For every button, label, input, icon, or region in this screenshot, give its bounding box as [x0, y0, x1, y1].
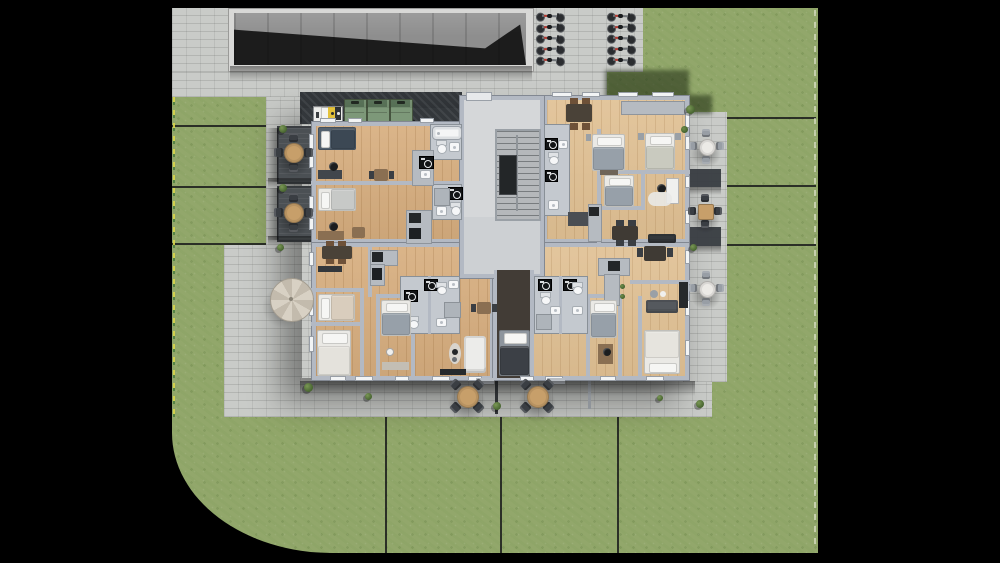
chair	[289, 133, 298, 142]
table-top	[284, 203, 304, 223]
patio-table-set	[691, 197, 719, 225]
bush	[657, 395, 663, 401]
parasol	[260, 274, 322, 332]
parasol-pole	[289, 297, 293, 301]
bush-foliage	[493, 402, 501, 410]
bush	[365, 393, 372, 400]
chair	[702, 298, 710, 306]
bush-foliage	[696, 400, 704, 408]
bush	[304, 383, 313, 392]
bush	[279, 125, 287, 133]
balcony-table-set	[275, 134, 311, 170]
patio-table-set	[447, 376, 487, 416]
bush-foliage	[690, 244, 697, 251]
floorplan-render	[0, 0, 1000, 563]
patio-table-set	[517, 376, 557, 416]
bush-foliage	[365, 393, 372, 400]
chair	[689, 142, 697, 150]
layer-outdoor	[0, 0, 1000, 563]
table-top	[698, 204, 714, 220]
table-top	[284, 143, 304, 163]
chair	[289, 193, 298, 202]
patio-table-set	[691, 273, 721, 303]
bush	[696, 400, 704, 408]
chair	[702, 156, 710, 164]
chair	[716, 284, 724, 292]
bush-foliage	[279, 125, 287, 133]
table-top	[457, 386, 479, 408]
bush-foliage	[686, 105, 695, 114]
bush	[277, 244, 284, 251]
chair	[689, 284, 697, 292]
chair	[289, 223, 298, 232]
table-top	[699, 281, 716, 298]
chair	[289, 163, 298, 172]
bush-foliage	[279, 184, 287, 192]
bush-foliage	[277, 244, 284, 251]
bush-foliage	[304, 383, 313, 392]
table-top	[527, 386, 549, 408]
bush-foliage	[657, 395, 663, 401]
chair	[688, 207, 696, 215]
bush	[686, 105, 695, 114]
chair	[304, 148, 313, 157]
bush	[690, 244, 697, 251]
chair	[274, 148, 283, 157]
chair	[702, 129, 710, 137]
bush	[279, 184, 287, 192]
chair	[274, 208, 283, 217]
patio-table-set	[691, 131, 721, 161]
chair	[701, 194, 709, 202]
table-top	[699, 139, 716, 156]
chair	[714, 207, 722, 215]
chair	[701, 220, 709, 228]
bush	[493, 402, 501, 410]
chair	[304, 208, 313, 217]
balcony-table-set	[275, 194, 311, 230]
chair	[716, 142, 724, 150]
chair	[702, 271, 710, 279]
